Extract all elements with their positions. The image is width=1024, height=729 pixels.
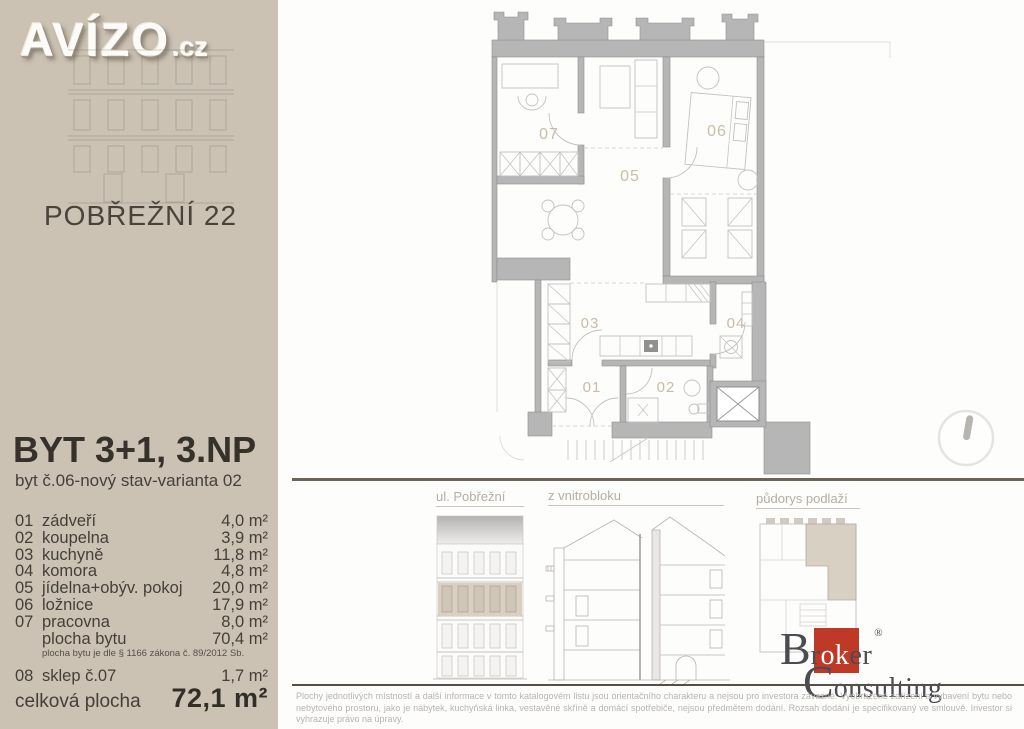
sidebar: AVÍZO .cz POBŘEŽNÍ 22 BYT 3+1, 3.NP byt …: [0, 0, 278, 729]
room-name: komora: [42, 563, 221, 580]
room-row: 01 zádveří 4,0 m²: [15, 513, 268, 530]
room-name: kuchyně: [42, 547, 213, 564]
room-area: 8,0 m²: [221, 614, 268, 631]
room-label-07: 07: [539, 126, 559, 143]
room-name: ložnice: [42, 597, 212, 614]
floor-area-row: plocha bytu 70,4 m²: [15, 631, 268, 648]
room-row: 04 komora 4,8 m²: [15, 563, 268, 580]
room-number: 02: [15, 530, 42, 547]
room-label-01: 01: [583, 379, 602, 396]
room-number: 01: [15, 513, 42, 530]
cellar-number: 08: [15, 668, 42, 685]
north-wall: [492, 12, 890, 58]
total-label: celková plocha: [15, 691, 141, 713]
room-label-06: 06: [707, 123, 727, 140]
room-area: 20,0 m²: [212, 580, 268, 597]
label-courtyard-elevation: z vnitrobloku: [548, 488, 724, 506]
catalog-sheet: AVÍZO .cz POBŘEŽNÍ 22 BYT 3+1, 3.NP byt …: [0, 0, 1024, 729]
label-street-elevation: ul. Pobřežní: [436, 489, 524, 507]
room-row: 03 kuchyně 11,8 m²: [15, 547, 268, 564]
total-row: celková plocha 72,1 m²: [15, 683, 268, 714]
elevator: [710, 381, 766, 427]
room-number: 03: [15, 547, 42, 564]
street-facade-drawing: [433, 516, 527, 679]
room01-furniture: [548, 368, 566, 412]
floor-area-note: plocha bytu je dle § 1166 zákona č. 89/2…: [42, 648, 268, 659]
room-name: koupelna: [42, 530, 221, 547]
floor-area-label: plocha bytu: [42, 631, 212, 648]
room-label-03: 03: [581, 315, 600, 332]
total-value: 72,1 m²: [171, 683, 268, 714]
room-row: 07 pracovna 8,0 m²: [15, 614, 268, 631]
room-number: 05: [15, 580, 42, 597]
room-area: 4,8 m²: [221, 563, 268, 580]
flat-title: BYT 3+1, 3.NP: [13, 429, 256, 471]
room-label-05: 05: [620, 168, 640, 185]
courtyard-section-drawing: [546, 517, 730, 684]
room-area: 17,9 m²: [212, 597, 268, 614]
room-row: 05 jídelna+obýv. pokoj 20,0 m²: [15, 580, 268, 597]
label-floor-plan: půdorys podlaží: [756, 491, 860, 509]
floor-area-value: 70,4 m²: [212, 631, 268, 648]
compass-icon: [939, 411, 993, 465]
room-area: 3,9 m²: [221, 530, 268, 547]
room-name: jídelna+obýv. pokoj: [42, 580, 212, 597]
room-table: 01 zádveří 4,0 m² 02 koupelna 3,9 m² 03 …: [15, 513, 268, 714]
room-number: 06: [15, 597, 42, 614]
room-area: 4,0 m²: [221, 513, 268, 530]
divider-line-bottom: [292, 684, 1024, 686]
room-area: 11,8 m²: [213, 547, 268, 564]
street-title: POBŘEŽNÍ 22: [44, 200, 237, 232]
room-label-02: 02: [657, 379, 676, 396]
building-sketch-watermark: [66, 46, 236, 204]
room05-furniture: [542, 60, 657, 240]
room-name: pracovna: [42, 614, 221, 631]
room-number: 07: [15, 614, 42, 631]
registered-mark: ®: [874, 628, 882, 639]
room-name: zádveří: [42, 513, 221, 530]
flat-subtitle: byt č.06-nový stav-varianta 02: [15, 471, 242, 491]
room-row: 02 koupelna 3,9 m²: [15, 530, 268, 547]
room07-furniture: [500, 64, 578, 176]
room-rows: 01 zádveří 4,0 m² 02 koupelna 3,9 m² 03 …: [15, 513, 268, 631]
divider-line-top: [292, 478, 1024, 481]
disclaimer-text: Plochy jednotlivých místností a další in…: [296, 691, 1012, 726]
room-number: 04: [15, 563, 42, 580]
floorplan-drawing: 07 05 06 03 04 01 02: [440, 0, 1020, 478]
room-label-04: 04: [727, 315, 746, 332]
staircase: [568, 438, 703, 462]
room03-furniture: [548, 284, 710, 362]
room-row: 06 ložnice 17,9 m²: [15, 597, 268, 614]
